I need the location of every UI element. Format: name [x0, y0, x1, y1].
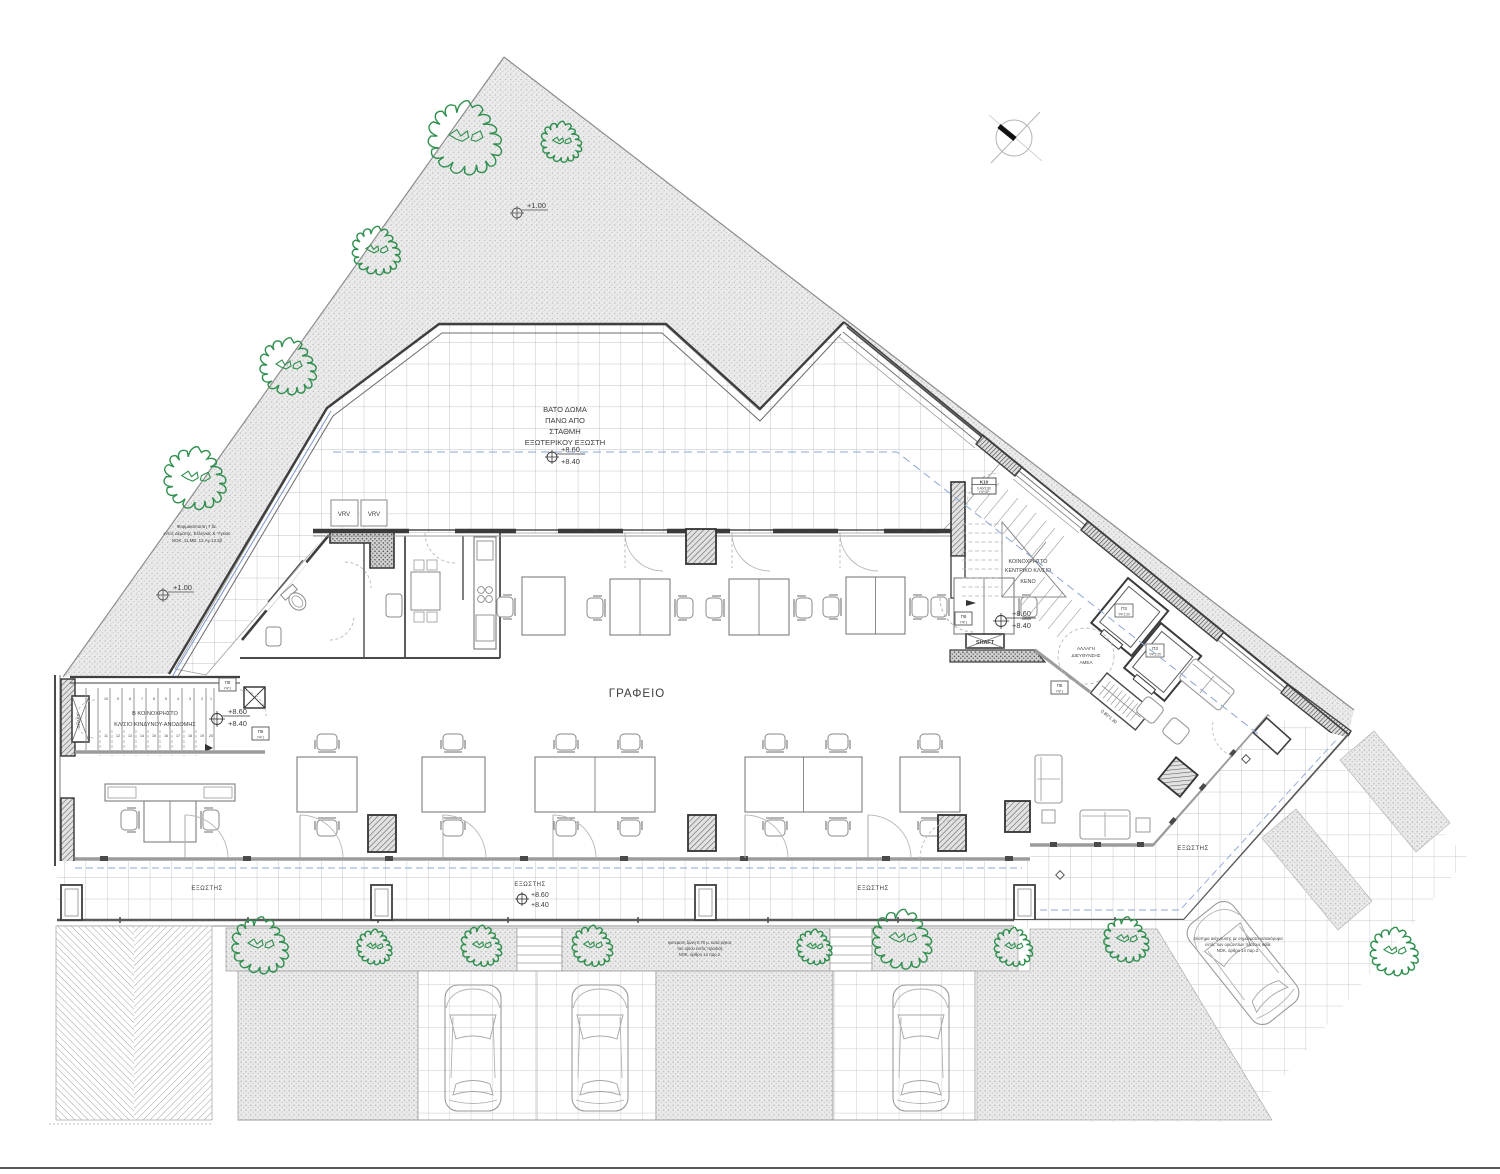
- svg-text:Π8: Π8: [225, 680, 231, 685]
- svg-text:ΥΨ:1: ΥΨ:1: [257, 736, 265, 740]
- svg-text:ΕΞΩΣΤΗΣ: ΕΞΩΣΤΗΣ: [1177, 846, 1208, 852]
- svg-text:ΓΡΑΦΕΙΟ: ΓΡΑΦΕΙΟ: [609, 688, 665, 700]
- svg-text:19: 19: [200, 734, 204, 738]
- svg-text:14: 14: [140, 734, 144, 738]
- svg-text:ΕΞΩΣΤΗΣ: ΕΞΩΣΤΗΣ: [514, 882, 545, 888]
- svg-text:VRV: VRV: [368, 512, 380, 518]
- svg-text:SHAFT: SHAFT: [976, 640, 995, 646]
- svg-text:ΝΟΚ. άρθρο 14 παρ.2.: ΝΟΚ. άρθρο 14 παρ.2.: [1217, 948, 1260, 953]
- svg-text:ΥΨ:1: ΥΨ:1: [224, 687, 232, 691]
- svg-text:9: 9: [117, 697, 119, 701]
- svg-text:εντός Δέματης, Ελληνιας & Ύγει: εντός Δέματης, Ελληνιας & Ύγειαυ: [164, 531, 231, 536]
- svg-text:12: 12: [116, 734, 120, 738]
- svg-text:Φαρμακόποιπη 7 δε.: Φαρμακόποιπη 7 δε.: [177, 524, 218, 529]
- svg-text:7: 7: [141, 697, 143, 701]
- svg-text:ΝΟΚ. 11.ΜΒ. 12.Αγ.13.2β: ΝΟΚ. 11.ΜΒ. 12.Αγ.13.2β: [172, 538, 223, 543]
- svg-text:ΑΛΛΑΓΗ: ΑΛΛΑΓΗ: [1077, 646, 1095, 651]
- svg-text:ΒΑΤΟ ΔΩΜΑ: ΒΑΤΟ ΔΩΜΑ: [543, 405, 588, 414]
- svg-text:+8.60: +8.60: [228, 707, 247, 716]
- svg-text:ΝΟΚ. άρθρο 14 παρ.2.: ΝΟΚ. άρθρο 14 παρ.2.: [679, 952, 722, 957]
- svg-text:Π8: Π8: [258, 729, 264, 734]
- svg-text:4: 4: [177, 697, 179, 701]
- svg-text:5: 5: [165, 697, 167, 701]
- svg-text:ΚΟΙΝΟΧΡΗΣΤΟ: ΚΟΙΝΟΧΡΗΣΤΟ: [1008, 559, 1047, 565]
- svg-text:ΕΞΩΣΤΗΣ: ΕΞΩΣΤΗΣ: [191, 886, 222, 892]
- svg-text:ΥΨ:1: ΥΨ:1: [960, 621, 968, 625]
- svg-text:+1.00: +1.00: [173, 583, 192, 592]
- svg-text:3: 3: [189, 697, 191, 701]
- svg-text:σύστημα ανίχνευσης με σημάνματ: σύστημα ανίχνευσης με σημάνματα κατακόρυ…: [1193, 936, 1283, 941]
- svg-text:15: 15: [152, 734, 156, 738]
- svg-text:ΥΨ:2.20: ΥΨ:2.20: [1118, 612, 1130, 616]
- svg-text:20: 20: [209, 734, 213, 738]
- svg-text:Β ΚΟΙΝΟΧΡΗΣΤΟ: Β ΚΟΙΝΟΧΡΗΣΤΟ: [132, 711, 178, 717]
- svg-text:+8.40: +8.40: [531, 902, 549, 909]
- svg-text:+8.40: +8.40: [1012, 621, 1031, 630]
- svg-text:+8.60: +8.60: [1012, 609, 1031, 618]
- svg-text:Κ10: Κ10: [980, 480, 989, 485]
- svg-text:ΚΕΝΟ: ΚΕΝΟ: [1020, 579, 1035, 585]
- svg-text:ΥΨ:1: ΥΨ:1: [1056, 690, 1064, 694]
- svg-text:ΣΤΑΘΜΗ: ΣΤΑΘΜΗ: [549, 427, 580, 436]
- svg-text:φυτεμενη ζώνη 0.70 μ. κατά μήκ: φυτεμενη ζώνη 0.70 μ. κατά μήκος: [668, 940, 732, 945]
- svg-text:+8.60: +8.60: [561, 445, 580, 454]
- svg-text:Π3: Π3: [1152, 646, 1158, 651]
- svg-text:ΚΛ/ΣΙΟ ΚΙΝΔΥΝΟΥ-ΑΝΟΔΟΜΗΣ: ΚΛ/ΣΙΟ ΚΙΝΔΥΝΟΥ-ΑΝΟΔΟΜΗΣ: [114, 722, 196, 728]
- svg-text:ΕΞΩΣΤΗΣ: ΕΞΩΣΤΗΣ: [857, 886, 888, 892]
- svg-text:VRV: VRV: [338, 512, 350, 518]
- svg-text:8: 8: [129, 697, 131, 701]
- svg-text:1: 1: [210, 697, 212, 701]
- svg-text:Π3: Π3: [1121, 606, 1127, 611]
- svg-text:+8.40: +8.40: [561, 457, 580, 466]
- svg-text:11: 11: [104, 734, 108, 738]
- svg-text:του ορίου εντός πρασιάς: του ορίου εντός πρασιάς: [677, 946, 723, 951]
- svg-text:+1.00: +1.00: [527, 201, 546, 210]
- svg-text:ΥΨ:ΟΡ: ΥΨ:ΟΡ: [979, 490, 991, 494]
- svg-text:6: 6: [153, 697, 155, 701]
- svg-text:ΚΕΝΤΡΙΚΟ ΚΛ/ΣΙΟ: ΚΕΝΤΡΙΚΟ ΚΛ/ΣΙΟ: [1005, 568, 1051, 574]
- svg-text:ΔΙΕΥΘΥΝΣΗΣ: ΔΙΕΥΘΥΝΣΗΣ: [1071, 653, 1100, 658]
- svg-text:18: 18: [188, 734, 192, 738]
- svg-text:+8.60: +8.60: [531, 892, 549, 899]
- svg-text:13: 13: [128, 734, 132, 738]
- svg-text:ΠΑΝΩ ΑΠΟ: ΠΑΝΩ ΑΠΟ: [545, 416, 585, 425]
- svg-text:ΑΜΕΑ: ΑΜΕΑ: [1079, 660, 1093, 665]
- svg-text:Π8: Π8: [961, 614, 967, 619]
- svg-text:10: 10: [104, 697, 108, 701]
- svg-text:16: 16: [164, 734, 168, 738]
- svg-text:17: 17: [176, 734, 180, 738]
- svg-text:Π8: Π8: [1057, 683, 1063, 688]
- svg-text:SHAFT: SHAFT: [76, 713, 81, 728]
- svg-text:+8.40: +8.40: [228, 719, 247, 728]
- svg-text:εντός των οριζοντίων πλάτους κ: εντός των οριζοντίων πλάτους κάθε: [1205, 942, 1271, 947]
- svg-text:2: 2: [201, 697, 203, 701]
